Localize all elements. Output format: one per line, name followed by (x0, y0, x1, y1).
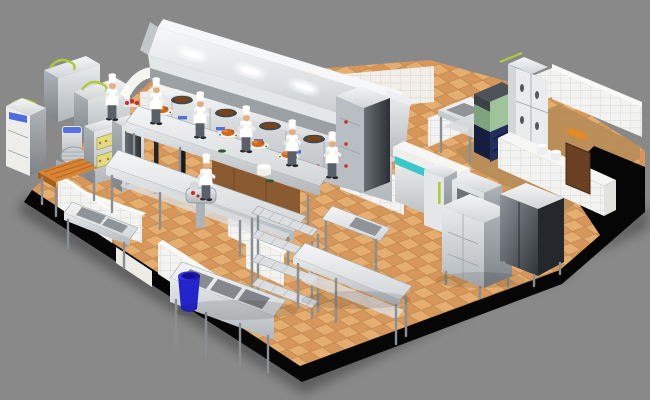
left-tall-cabinet (6, 98, 46, 176)
steamer-cabinet (336, 86, 390, 192)
fridge-handle (438, 182, 441, 204)
kitchen-render (0, 0, 650, 400)
